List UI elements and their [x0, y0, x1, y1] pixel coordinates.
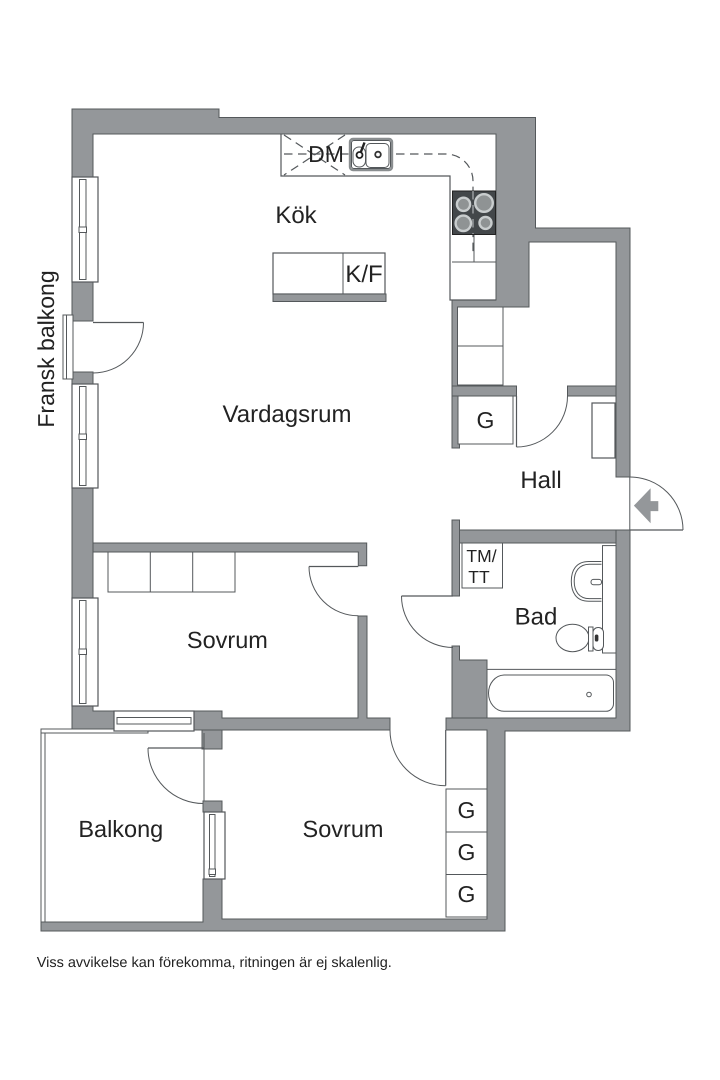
- svg-text:Balkong: Balkong: [78, 816, 163, 842]
- svg-text:Vardagsrum: Vardagsrum: [223, 401, 352, 428]
- svg-text:G: G: [458, 797, 476, 823]
- svg-text:G: G: [477, 407, 495, 433]
- svg-text:Bad: Bad: [515, 604, 558, 631]
- svg-text:TM/: TM/: [466, 546, 496, 566]
- svg-text:Kök: Kök: [275, 202, 317, 229]
- svg-text:Hall: Hall: [520, 467, 561, 494]
- svg-text:G: G: [458, 839, 476, 865]
- svg-text:Fransk balkong: Fransk balkong: [33, 270, 59, 427]
- svg-text:Sovrum: Sovrum: [303, 816, 384, 842]
- svg-text:Viss avvikelse kan förekomma,: Viss avvikelse kan förekomma, ritningen …: [37, 955, 392, 971]
- svg-text:G: G: [458, 881, 476, 907]
- svg-text:TT: TT: [468, 567, 490, 587]
- svg-text:Sovrum: Sovrum: [187, 627, 268, 653]
- svg-text:K/F: K/F: [345, 261, 382, 288]
- svg-text:DM: DM: [308, 141, 344, 167]
